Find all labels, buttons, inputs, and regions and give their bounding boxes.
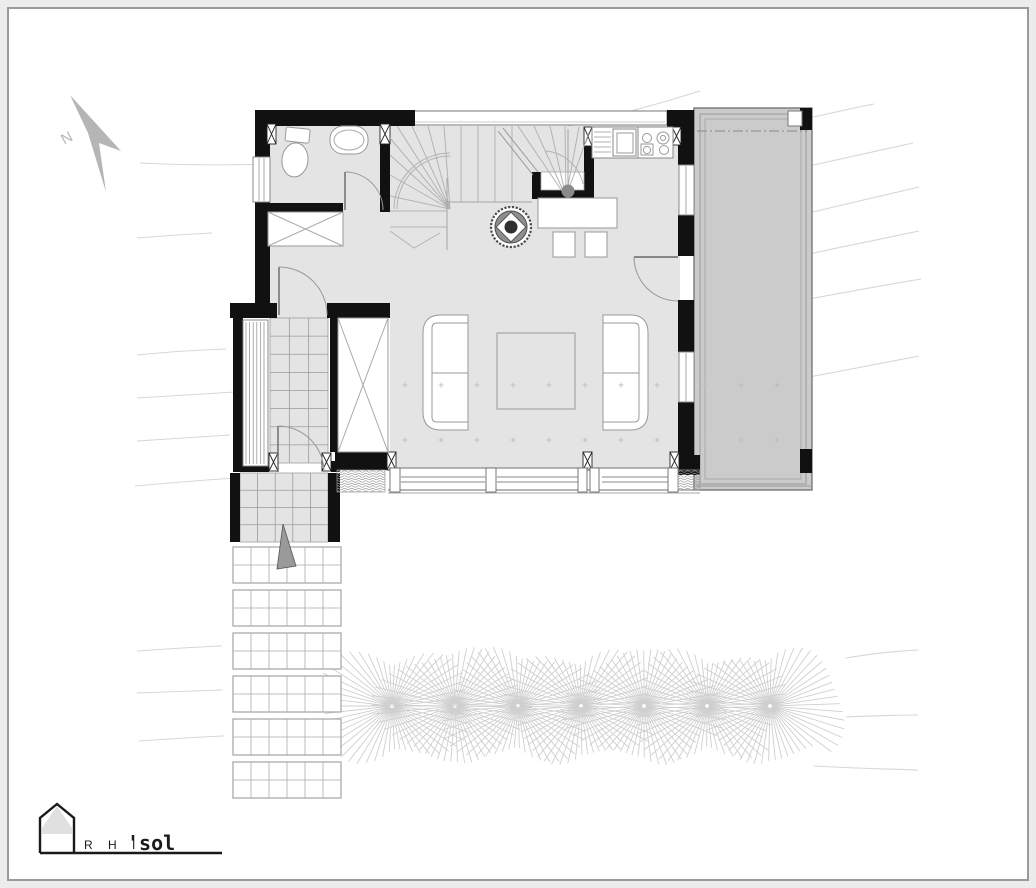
terrace bbox=[694, 108, 812, 490]
doormat-south bbox=[337, 470, 385, 492]
stair-column bbox=[562, 185, 575, 198]
terrace-post-bottom bbox=[800, 449, 812, 473]
bathroom-sink bbox=[330, 126, 368, 154]
stool-1 bbox=[553, 232, 575, 257]
window-west bbox=[253, 157, 270, 202]
terrace-column bbox=[788, 111, 802, 126]
wood-stove bbox=[491, 207, 531, 247]
doormat-terrace bbox=[678, 470, 700, 490]
stool-2 bbox=[585, 232, 607, 257]
floor-plan-drawing: N bbox=[0, 0, 1036, 888]
dining-table bbox=[538, 198, 617, 228]
kitchen-counter bbox=[592, 127, 673, 158]
floor-plan-sheet: N bbox=[0, 0, 1036, 888]
closet-vestibule bbox=[338, 318, 388, 452]
top-window-band bbox=[408, 111, 667, 125]
closet-hall bbox=[268, 212, 343, 246]
logo-text-suffix: 'sol bbox=[127, 831, 175, 855]
